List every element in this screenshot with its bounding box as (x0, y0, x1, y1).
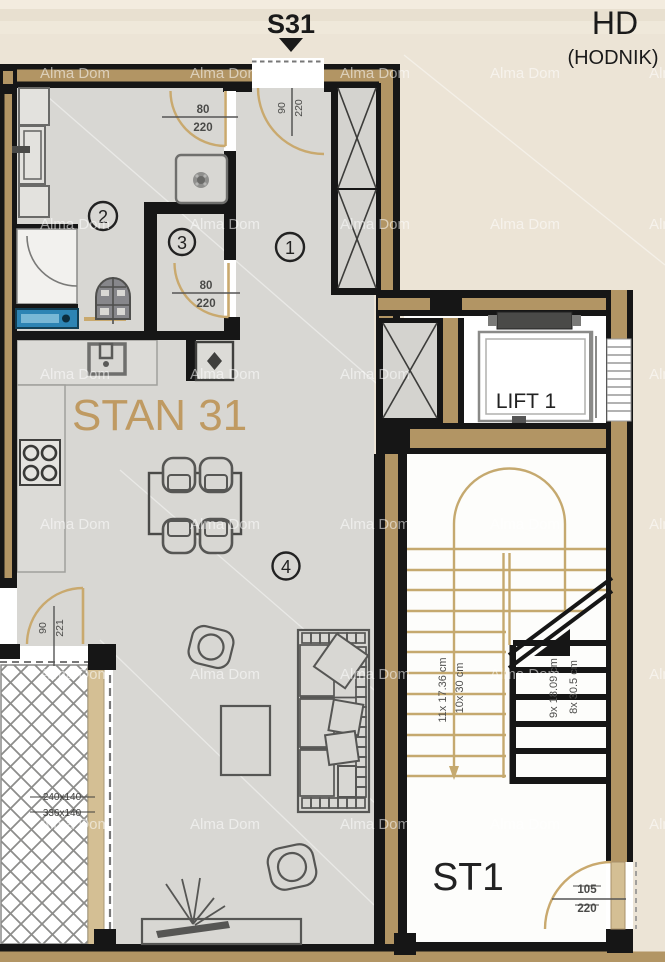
svg-text:80: 80 (197, 104, 210, 116)
svg-text:Alm: Alm (649, 216, 665, 233)
svg-text:Alma Dom: Alma Dom (340, 666, 410, 683)
svg-text:3: 3 (177, 233, 187, 253)
svg-text:Alma Dom: Alma Dom (340, 216, 410, 233)
svg-text:Alm: Alm (649, 516, 665, 533)
svg-text:Alm: Alm (649, 816, 665, 833)
svg-text:Alma Dom: Alma Dom (40, 516, 110, 533)
svg-text:221: 221 (54, 619, 66, 637)
svg-text:Alm: Alm (649, 666, 665, 683)
svg-text:Alma Dom: Alma Dom (190, 216, 260, 233)
svg-text:Alma Dom: Alma Dom (340, 65, 410, 82)
svg-text:ST1: ST1 (432, 856, 504, 899)
svg-text:Alm: Alm (649, 65, 665, 82)
svg-text:Alma Dom: Alma Dom (340, 366, 410, 383)
svg-text:Alma Dom: Alma Dom (40, 366, 110, 383)
svg-text:S31: S31 (267, 9, 315, 39)
svg-text:Alma Dom: Alma Dom (190, 816, 260, 833)
svg-text:Alma Dom: Alma Dom (340, 516, 410, 533)
svg-text:STAN 31: STAN 31 (72, 391, 247, 440)
svg-text:1: 1 (285, 238, 295, 258)
svg-text:Alma Dom: Alma Dom (340, 816, 410, 833)
svg-text:Alma Dom: Alma Dom (490, 65, 560, 82)
svg-text:90: 90 (276, 102, 288, 114)
svg-text:4: 4 (281, 557, 291, 577)
svg-text:(HODNIK): (HODNIK) (567, 47, 658, 69)
svg-text:Alma Dom: Alma Dom (40, 216, 110, 233)
svg-text:80: 80 (200, 280, 213, 292)
svg-text:Alma Dom: Alma Dom (40, 816, 110, 833)
svg-text:Alma Dom: Alma Dom (490, 516, 560, 533)
svg-text:Alma Dom: Alma Dom (490, 366, 560, 383)
svg-text:Alma Dom: Alma Dom (190, 65, 260, 82)
svg-text:Alma Dom: Alma Dom (490, 666, 560, 683)
svg-text:Alma Dom: Alma Dom (40, 666, 110, 683)
svg-text:11x 17.36 cm: 11x 17.36 cm (437, 657, 449, 722)
svg-text:10x 30 cm: 10x 30 cm (454, 663, 466, 714)
svg-text:LIFT 1: LIFT 1 (496, 390, 556, 413)
svg-text:220: 220 (193, 122, 212, 134)
svg-text:8x 30.5 cm: 8x 30.5 cm (568, 660, 580, 714)
svg-text:Alma Dom: Alma Dom (490, 216, 560, 233)
svg-text:Alma Dom: Alma Dom (40, 65, 110, 82)
svg-text:Alma Dom: Alma Dom (190, 366, 260, 383)
svg-text:Alm: Alm (649, 366, 665, 383)
svg-text:90: 90 (37, 622, 49, 634)
svg-text:Alma Dom: Alma Dom (190, 516, 260, 533)
svg-text:HD: HD (592, 5, 638, 41)
svg-text:220: 220 (196, 298, 215, 310)
svg-text:Alma Dom: Alma Dom (490, 816, 560, 833)
svg-text:Alma Dom: Alma Dom (190, 666, 260, 683)
svg-text:220: 220 (293, 99, 305, 117)
